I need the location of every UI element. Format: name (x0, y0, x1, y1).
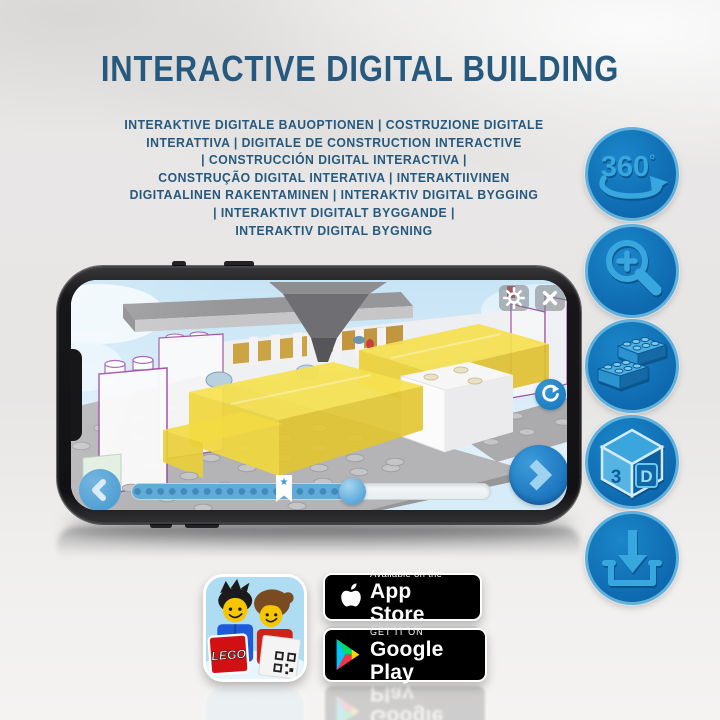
chevron-right-icon (524, 457, 554, 493)
chevron-left-icon (89, 477, 111, 503)
phone-mockup: ★ (57, 266, 581, 524)
google-play-icon (335, 636, 361, 674)
settings-button[interactable] (499, 285, 529, 311)
subtitle-line: INTERAKTIV DIGITAL BYGNING (0, 222, 672, 240)
marketing-page: INTERACTIVE DIGITAL BUILDING INTERAKTIVE… (0, 0, 720, 720)
svg-text:D: D (640, 467, 652, 486)
lego-logo-text: LEGO (211, 647, 247, 663)
zoom-in-icon (585, 224, 679, 318)
screen-glare (71, 280, 567, 510)
subtitle-line: DIGITAALINEN RAKENTAMINEN | INTERAKTIV D… (0, 186, 672, 204)
google-play-badge[interactable]: GET IT ON Google Play (323, 628, 487, 682)
phone-reflection (57, 527, 581, 563)
svg-text:360°: 360° (601, 151, 655, 183)
lego-app-icon: LEGO (203, 574, 307, 682)
rotate-arrow-icon (540, 384, 561, 405)
lego-app-icon-reflection (203, 685, 307, 720)
svg-text:3: 3 (611, 467, 622, 488)
subtitle-line: INTERATTIVA | DIGITALE DE CONSTRUCTION I… (0, 134, 672, 152)
apple-icon (335, 582, 361, 612)
phone-notch (71, 349, 82, 441)
subtitle-block: INTERAKTIVE DIGITALE BAUOPTIONEN | COSTR… (0, 116, 672, 239)
app-store-name: App Store (370, 580, 472, 626)
close-button[interactable] (535, 285, 565, 311)
subtitle-line: | INTERAKTIVT DIGITALT BYGGANDE | (0, 204, 672, 222)
close-icon (540, 288, 560, 308)
page-title: INTERACTIVE DIGITAL BUILDING (50, 48, 669, 90)
progress-fill (132, 484, 364, 499)
build-progress-bar[interactable] (131, 483, 491, 500)
subtitle-line: CONSTRUÇÃO DIGITAL INTERATIVA | INTERAKT… (0, 169, 672, 187)
app-store-tagline: Available on the (370, 569, 472, 580)
google-play-tagline: GET IT ON (370, 627, 477, 638)
3d-cube-icon: 3 D (585, 415, 679, 509)
previous-step-button[interactable] (79, 469, 121, 510)
app-store-badge[interactable]: Available on the App Store (323, 573, 482, 621)
progress-handle[interactable] (339, 478, 366, 505)
subtitle-line: INTERAKTIVE DIGITALE BAUOPTIONEN | COSTR… (0, 116, 672, 134)
next-step-button[interactable] (509, 445, 567, 505)
bricks-icon (585, 319, 679, 413)
google-play-name: Google Play (370, 638, 477, 684)
download-icon (585, 511, 679, 605)
subtitle-line: | CONSTRUCCIÓN DIGITAL INTERACTIVA | (0, 151, 672, 169)
google-play-badge-reflection: GET IT ON Google Play (323, 684, 487, 720)
lego-app-art: LEGO (206, 577, 304, 679)
gear-icon (503, 287, 525, 309)
phone-screen: ★ (71, 280, 567, 510)
rotate-360-icon: 360° (585, 127, 679, 221)
rotate-view-button[interactable] (535, 379, 566, 410)
